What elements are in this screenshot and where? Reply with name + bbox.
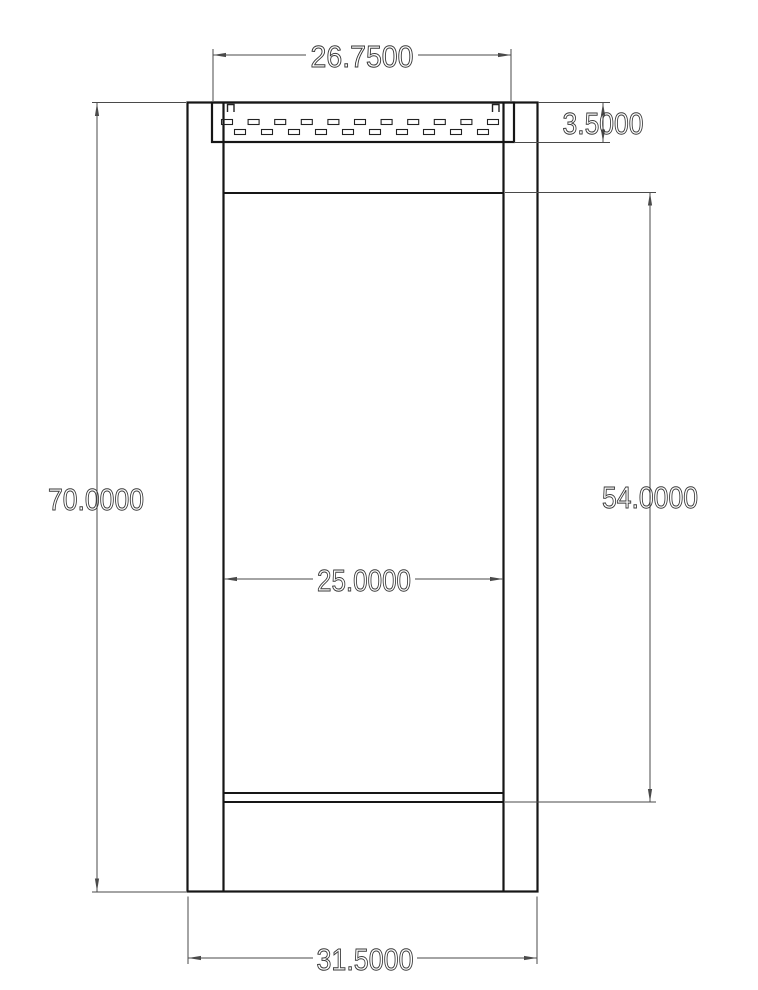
frame-outer-rect	[188, 103, 538, 892]
dimension-opening-height: 54.0000	[505, 193, 698, 803]
louver-slot	[248, 120, 259, 125]
arrow-down-icon	[648, 789, 652, 802]
louver-slot	[235, 130, 246, 135]
dimension-opening-width: 25.0000	[224, 563, 503, 598]
vent-outer-rect	[212, 103, 514, 143]
louver-slot	[381, 120, 392, 125]
louver-slot	[461, 120, 472, 125]
louver-slot	[343, 130, 354, 135]
louver-slot	[434, 120, 445, 125]
dimension-overall-height: 70.0000	[48, 103, 186, 893]
dimension-text-opening-width: 25.0000	[317, 563, 411, 598]
arrow-left-icon	[188, 956, 201, 960]
louver-slot	[397, 130, 408, 135]
louver-slot	[488, 120, 499, 125]
louver-slot	[424, 130, 435, 135]
cad-drawing-canvas: 26.7500 3.5000 70.0000 54.000	[0, 0, 758, 990]
arrow-down-icon	[95, 879, 99, 892]
arrow-up-icon	[95, 103, 99, 116]
door-frame	[188, 103, 538, 892]
dimension-text-overall-height: 70.0000	[48, 482, 144, 517]
vent-left-clip	[228, 105, 235, 113]
arrow-left-icon	[213, 53, 226, 57]
dimension-overall-width: 31.5000	[188, 897, 537, 978]
dimension-text-opening-height: 54.0000	[602, 480, 698, 515]
arrow-up-icon	[648, 193, 652, 206]
louver-slot	[478, 130, 489, 135]
louver-slot	[355, 120, 366, 125]
arrow-right-icon	[498, 53, 511, 57]
dimension-text-overall-width: 31.5000	[317, 942, 414, 977]
dimension-vent-width: 26.7500	[213, 39, 511, 101]
arrow-left-icon	[224, 577, 237, 581]
dimension-text-vent-height: 3.5000	[563, 106, 644, 141]
louver-slot	[316, 130, 327, 135]
door-drawing: 26.7500 3.5000 70.0000 54.000	[0, 0, 758, 990]
dimension-vent-height: 3.5000	[514, 103, 644, 143]
louver-slot	[451, 130, 462, 135]
louver-dashes	[222, 120, 499, 135]
louver-slot	[301, 120, 312, 125]
louver-slot	[262, 130, 273, 135]
louver-slot	[408, 120, 419, 125]
arrow-right-icon	[490, 577, 503, 581]
louver-slot	[328, 120, 339, 125]
louver-slot	[370, 130, 381, 135]
vent-right-clip	[493, 105, 500, 113]
louver-slot	[289, 130, 300, 135]
dimension-text-vent-width: 26.7500	[311, 39, 414, 74]
arrow-right-icon	[524, 956, 537, 960]
louver-vent	[212, 103, 514, 143]
louver-slot	[275, 120, 286, 125]
